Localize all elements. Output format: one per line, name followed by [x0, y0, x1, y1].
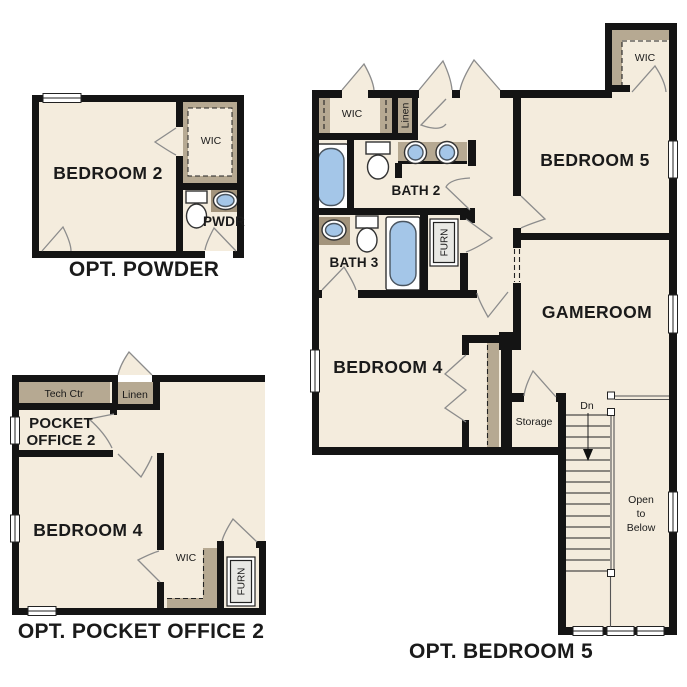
open-below-window: [669, 492, 678, 532]
furn-label: FURN: [440, 229, 451, 257]
bath3-sink-icon: [322, 220, 346, 240]
bedroom4-label: BEDROOM 4: [333, 357, 443, 377]
floorplan-opt-pocket-office-2: Tech Ctr Linen POCKET OFFICE 2 BEDROOM 4…: [11, 352, 267, 643]
floorplan-opt-powder: BEDROOM 2 WIC PWDR OPT. POWDER: [32, 94, 245, 282]
bath2-toilet-icon: [366, 142, 390, 179]
floorplan-opt-bedroom-5: WIC Linen BATH 2 BEDROOM 5 WIC BATH 3 FU…: [311, 23, 678, 663]
linen-label: Linen: [400, 103, 412, 129]
open-below-label-line3: Below: [627, 522, 656, 534]
furn-label: FURN: [237, 568, 248, 596]
railing-post: [608, 570, 615, 577]
bedroom4-window: [311, 350, 320, 392]
caption-opt-pocket-office-2: OPT. POCKET OFFICE 2: [18, 620, 264, 643]
floorplan-sheet: BEDROOM 2 WIC PWDR OPT. POWDER: [0, 0, 687, 687]
tech-ctr-label: Tech Ctr: [44, 388, 84, 400]
powder-toilet-tank-icon: [186, 191, 207, 203]
gameroom-label: GAMEROOM: [542, 302, 652, 322]
wic-hall-door: [342, 64, 374, 90]
pocket-office-label-line2: OFFICE 2: [26, 432, 95, 449]
bath3-label: BATH 3: [330, 255, 379, 270]
stair-bay-floor: [558, 393, 677, 635]
open-below-label-line2: to: [637, 508, 646, 520]
hall-double-door-right: [460, 60, 500, 90]
rear-windows: [573, 627, 664, 636]
wic-label: WIC: [201, 135, 222, 147]
linen-label: Linen: [122, 389, 148, 401]
linen-hall-door: [118, 352, 152, 375]
floorplan-canvas: BEDROOM 2 WIC PWDR OPT. POWDER: [0, 0, 687, 687]
down-label: Dn: [580, 400, 594, 412]
hall-double-door-left: [419, 61, 452, 90]
bedroom2-label: BEDROOM 2: [53, 163, 163, 183]
powder-sink-basin-icon: [217, 195, 234, 207]
wic-bed5-label: WIC: [635, 52, 656, 64]
railing-post: [608, 392, 615, 399]
bedroom4-window-bottom: [28, 607, 56, 616]
open-below-label-line1: Open: [628, 494, 654, 506]
storage-label: Storage: [516, 416, 553, 428]
wic-label: WIC: [176, 552, 197, 564]
caption-opt-bedroom-5: OPT. BEDROOM 5: [409, 640, 593, 663]
wic-shelf-bottom: [167, 598, 217, 608]
bedroom2-window: [43, 94, 81, 103]
pwdr-label: PWDR: [203, 214, 245, 229]
wic-hall-label: WIC: [342, 108, 363, 120]
bath3-toilet-icon: [356, 216, 378, 252]
caption-opt-powder: OPT. POWDER: [69, 258, 219, 281]
bedroom4-closet-shelf: [487, 343, 499, 447]
gameroom-window: [669, 295, 678, 333]
pocket-office-window: [11, 417, 20, 444]
bath2-label: BATH 2: [392, 183, 441, 198]
railing-post: [608, 409, 615, 416]
bedroom5-window: [669, 141, 678, 178]
pocket-office-label-line1: POCKET: [29, 415, 93, 432]
bedroom4-label: BEDROOM 4: [33, 520, 143, 540]
bath3-tub-icon: [386, 217, 420, 290]
bedroom5-label: BEDROOM 5: [540, 150, 650, 170]
bath2-tub-icon: [314, 144, 348, 210]
bedroom4-window-left: [11, 515, 20, 542]
